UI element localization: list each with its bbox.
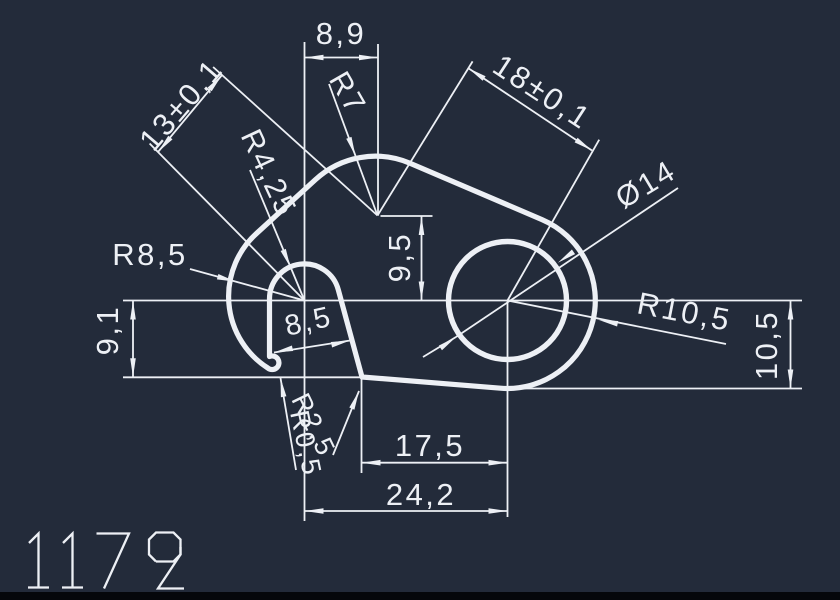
svg-text:9,1: 9,1 <box>90 305 125 356</box>
svg-text:24,2: 24,2 <box>386 477 456 512</box>
svg-text:R7: R7 <box>322 66 372 120</box>
svg-text:8,9: 8,9 <box>316 16 367 51</box>
svg-text:13±0,1: 13±0,1 <box>132 52 230 158</box>
svg-text:8,5: 8,5 <box>282 301 336 343</box>
svg-text:17,5: 17,5 <box>395 428 465 463</box>
svg-text:R8,5: R8,5 <box>112 237 187 272</box>
svg-text:Ø14: Ø14 <box>610 154 682 215</box>
svg-text:10,5: 10,5 <box>749 310 784 380</box>
svg-text:9,5: 9,5 <box>382 232 417 283</box>
svg-text:R10,5: R10,5 <box>634 285 734 338</box>
